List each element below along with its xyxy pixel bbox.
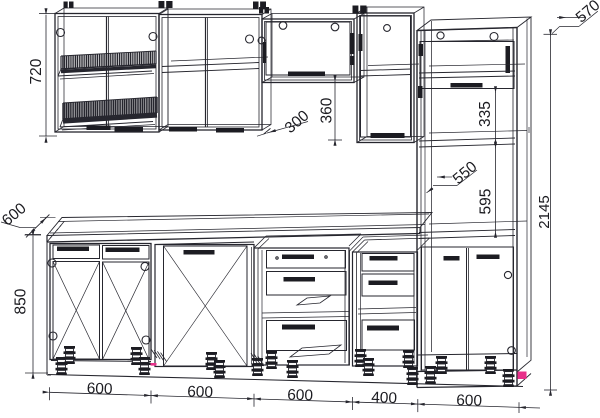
- svg-text:600: 600: [287, 387, 314, 405]
- svg-text:595: 595: [478, 189, 495, 215]
- svg-text:850: 850: [13, 288, 30, 314]
- svg-text:335: 335: [477, 101, 494, 127]
- svg-text:720: 720: [28, 58, 45, 84]
- svg-text:600: 600: [86, 380, 113, 398]
- svg-text:360: 360: [319, 97, 336, 123]
- svg-text:600: 600: [456, 392, 483, 410]
- svg-text:2145: 2145: [536, 195, 553, 228]
- svg-text:600: 600: [187, 383, 214, 401]
- svg-text:400: 400: [371, 389, 398, 407]
